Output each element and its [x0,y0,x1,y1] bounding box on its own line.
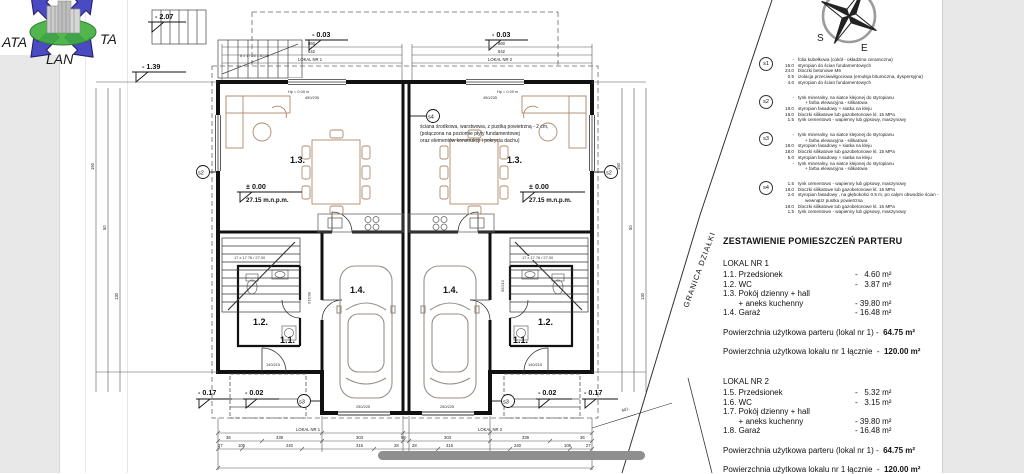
schedule-section-lokal2: LOKAL NR 2 1.5. Przedsionek- 5.32 m² 1.6… [723,377,939,474]
garage-door-size: 250/225 [356,404,370,409]
dim: 339 [522,435,530,440]
dim-860: 860 [498,41,506,46]
dim: 105 [238,443,246,448]
room-label-1-4: 1.4. [350,285,365,295]
lokal1-bottom-label: LOKAL NR 1 [296,427,321,432]
wall-note-line1: ściana środkowa, warstwowa, z pustką pow… [420,124,548,130]
dim: 240 [514,443,522,448]
s4-marker: s4 [759,181,773,195]
level-003: - 0.03 [492,30,510,39]
dim-642: 642 [308,49,316,54]
granica-dzialki-label: GRANICA DZIAŁKI [681,230,717,308]
garage-door-size: 250/225 [440,404,454,409]
dim: 27 [586,443,591,448]
dim: 303 [356,435,364,440]
legend-line: 1.5tynk cementowo - wapienny lub gipsowy… [783,117,943,123]
dim: 401 [621,406,630,413]
s2-marker: s2 [198,171,204,177]
s2-marker: s2 [606,171,612,177]
s3-marker: s3 [503,400,509,406]
dim: 28 [412,443,417,448]
room-label-1-1: 1.1. [513,335,528,345]
legend-line: + farba elewacyjna - silikatowa [783,166,943,172]
room-label-1-3: 1.3. [290,155,305,165]
dim: 36 [226,435,231,440]
compass-east-label: E [861,43,868,54]
window-size-label: 450/235 [305,95,319,100]
dim: 339 [276,435,284,440]
schedule-row: 1.7. Pokój dzienny + hall [723,407,939,417]
hp-label: Hp = 0.00 m [497,89,518,94]
room-label-1-1: 1.1. [280,335,295,345]
schedule-row: 1.4. Garaż- 16.48 m² [723,308,939,318]
legend-group-s4: s4 1.5tynk cementowo - wapienny lub gips… [757,181,943,215]
viewer-background-right [942,0,1024,473]
lokal2-total-parter: Powierzchnia użytkowa parteru (lokal nr … [723,446,939,455]
schedule-row: 1.6. WC- 3.15 m² [723,398,939,408]
dim: 50 [102,225,107,230]
viewer-canvas: { "logo": { "ata": "ATA", "ta": "TA", "l… [0,0,1024,473]
lokal2-header: LOKAL NR 2 [723,377,939,386]
stairs-ext-label: 8 x 17.00 / 30.00 [240,53,270,58]
schedule-title: ZESTAWIENIE POMIESZCZEŃ PARTERU [723,236,939,246]
altitude-label: 27.15 m.n.p.m. [529,197,572,204]
level-003: - 0.03 [312,30,330,39]
legend-group-s1: s1 -folia kubełkowa (cokół - okładzina c… [757,57,943,86]
dim: 130 [114,292,119,300]
level-000: ± 0.00 [246,182,266,191]
level-207: - 2.07 [155,12,173,21]
dim-860: 860 [308,41,316,46]
dim-642: 642 [498,49,506,54]
schedule-row: 1.5. Przedsionek- 5.32 m² [723,388,939,398]
schedule-section-lokal1: LOKAL NR 1 1.1. Przedsionek- 4.60 m² 1.2… [723,259,939,356]
room-label-1-3: 1.3. [507,155,522,165]
dim: 303 [444,435,452,440]
dim: 315 [446,443,454,448]
logo-text-ata: ATA [1,34,27,50]
level-000: ± 0.00 [529,182,549,191]
dim: 150 [90,162,95,170]
horizontal-scrollbar[interactable] [378,451,645,460]
schedule-row: 1.3. Pokój dzienny + hall [723,289,939,299]
room-schedule: ZESTAWIENIE POMIESZCZEŃ PARTERU LOKAL NR… [723,236,939,474]
stairs-label: 17 x 17.76 / 27.00 [234,255,266,260]
window-size-label: 450/235 [483,95,497,100]
viewer-background-left [0,55,60,473]
materials-legend: s1 -folia kubełkowa (cokół - okładzina c… [757,57,943,224]
agency-logo: ATA TA LAN [0,0,132,72]
compass-south-label: S [817,33,824,44]
compass-rose-icon: S E [811,0,887,55]
entry-door-size: 140/215 [266,362,280,367]
logo-text-ta: TA [100,31,117,47]
lokal1-top-label: LOKAL NR 1 [298,57,323,62]
lokal1-total-parter: Powierzchnia użytkowa parteru (lokal nr … [723,328,939,337]
lokal2-top-label: LOKAL NR 2 [488,57,513,62]
stairs-label: 17 x 17.76 / 27.00 [522,255,554,260]
s3-marker: s3 [299,400,305,406]
dim: 105 [564,443,572,448]
dim: 150 [616,162,621,170]
logo-text-lan: LAN [46,51,74,67]
room-label-1-2: 1.2. [538,317,553,327]
dim: 36 [580,435,585,440]
level-017: - 0.17 [584,388,602,397]
door-size-label: 90/210 [307,292,312,305]
room-label-1-2: 1.2. [253,317,268,327]
lokal2-bottom-label: LOKAL NR 2 [478,427,503,432]
dim: 27 [218,443,223,448]
level-017: - 0.17 [198,388,216,397]
s4-marker: s4 [428,115,434,121]
wall-note-line3: oraz elementów konstrukcji i pokrycia da… [420,138,520,144]
exterior-stairs [152,10,302,78]
door-size-label: 90/210 [500,279,505,292]
dim: 240 [286,443,294,448]
s2-marker: s2 [759,95,773,109]
schedule-row: 1.2. WC- 3.87 m² [723,280,939,290]
legend-group-s2: s2 -tynk mineralny, na siatce klejonej d… [757,95,943,124]
level-002: - 0.02 [245,388,263,397]
dim: 98 [401,435,406,440]
s1-marker: s1 [759,57,773,71]
lokal1-header: LOKAL NR 1 [723,259,939,268]
schedule-row: 1.8. Garaż- 16.48 m² [723,426,939,436]
dim: 50 [628,225,633,230]
room-label-1-4: 1.4. [443,285,458,295]
lokal1-total-lacznie: Powierzchnia użytkowa lokalu nr 1 łączni… [723,347,939,356]
dim: 315 [356,443,364,448]
wall-note-line2: (połączona na poziomie płyty fundamentow… [420,131,520,137]
legend-line: 4.0styropian do ścian fundamentowych [783,80,943,86]
altitude-label: 27.15 m.n.p.m. [246,197,289,204]
schedule-row: + aneks kuchenny- 39.80 m² [723,417,939,427]
level-139: - 1.39 [142,62,160,71]
dim-lines-top [222,44,592,80]
hp-label: Hp = 0.00 m [288,89,309,94]
dim: 130 [640,292,645,300]
schedule-row: 1.1. Przedsionek- 4.60 m² [723,270,939,280]
schedule-row: + aneks kuchenny- 39.80 m² [723,299,939,309]
dim-lines-bottom [216,416,594,470]
level-002: - 0.02 [538,388,556,397]
legend-group-s3: s3 -tynk mineralny, na siatce klejonej d… [757,132,943,172]
entry-door-size: 140/215 [528,362,542,367]
legend-line: 1.5tynk cementowo - wapienny lub gipsowy… [783,209,943,215]
s3-marker: s3 [759,132,773,146]
dim: 28 [394,443,399,448]
